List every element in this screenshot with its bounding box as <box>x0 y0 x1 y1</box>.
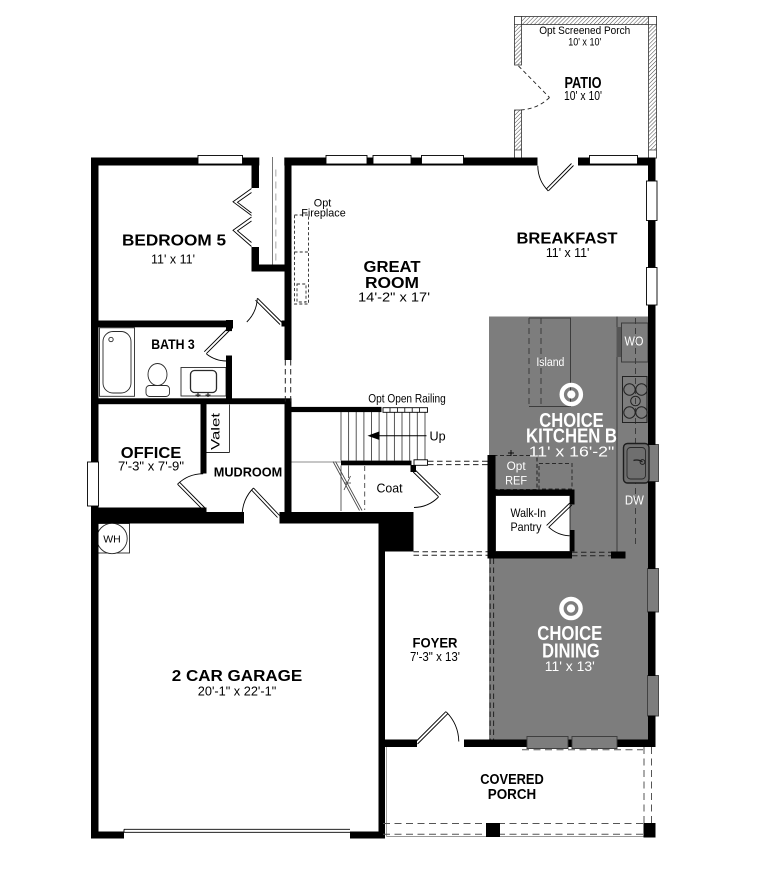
svg-text:2 CAR GARAGE: 2 CAR GARAGE <box>172 668 303 685</box>
svg-text:11' x 16'-2": 11' x 16'-2" <box>529 445 615 461</box>
svg-text:WH: WH <box>103 534 121 546</box>
svg-text:FOYER: FOYER <box>413 635 458 651</box>
svg-text:Opt Open Railing: Opt Open Railing <box>368 392 446 406</box>
svg-text:COVERED: COVERED <box>480 772 544 788</box>
svg-text:20'-1" x 22'-1": 20'-1" x 22'-1" <box>198 684 277 699</box>
svg-text:Opt Screened Porch: Opt Screened Porch <box>539 25 630 37</box>
svg-text:Island: Island <box>536 355 564 369</box>
svg-text:REF: REF <box>505 474 527 488</box>
svg-text:Coat: Coat <box>377 482 403 496</box>
svg-text:Fireplace: Fireplace <box>301 208 345 220</box>
svg-text:Opt: Opt <box>507 459 527 473</box>
svg-text:11' x 11': 11' x 11' <box>546 245 590 260</box>
svg-text:GREAT: GREAT <box>364 259 422 276</box>
svg-text:Valet: Valet <box>209 412 223 450</box>
svg-text:Pantry: Pantry <box>511 520 543 534</box>
svg-text:14'-2" x 17': 14'-2" x 17' <box>358 290 430 305</box>
svg-text:Up: Up <box>430 430 446 444</box>
svg-text:DW: DW <box>625 493 644 507</box>
svg-text:7'-3" x 7'-9": 7'-3" x 7'-9" <box>118 460 184 474</box>
svg-text:BEDROOM 5: BEDROOM 5 <box>122 233 226 250</box>
svg-text:11' x 11': 11' x 11' <box>151 252 195 267</box>
svg-text:BATH 3: BATH 3 <box>151 336 195 352</box>
svg-text:10' x 10': 10' x 10' <box>564 89 602 103</box>
svg-text:11' x 13': 11' x 13' <box>545 658 595 674</box>
svg-text:7'-3" x 13': 7'-3" x 13' <box>410 650 460 664</box>
svg-text:10' x 10': 10' x 10' <box>568 37 601 49</box>
svg-text:Walk-In: Walk-In <box>511 506 547 520</box>
svg-text:WO: WO <box>625 334 644 348</box>
svg-text:MUDROOM: MUDROOM <box>214 465 283 480</box>
svg-text:PORCH: PORCH <box>488 787 537 803</box>
